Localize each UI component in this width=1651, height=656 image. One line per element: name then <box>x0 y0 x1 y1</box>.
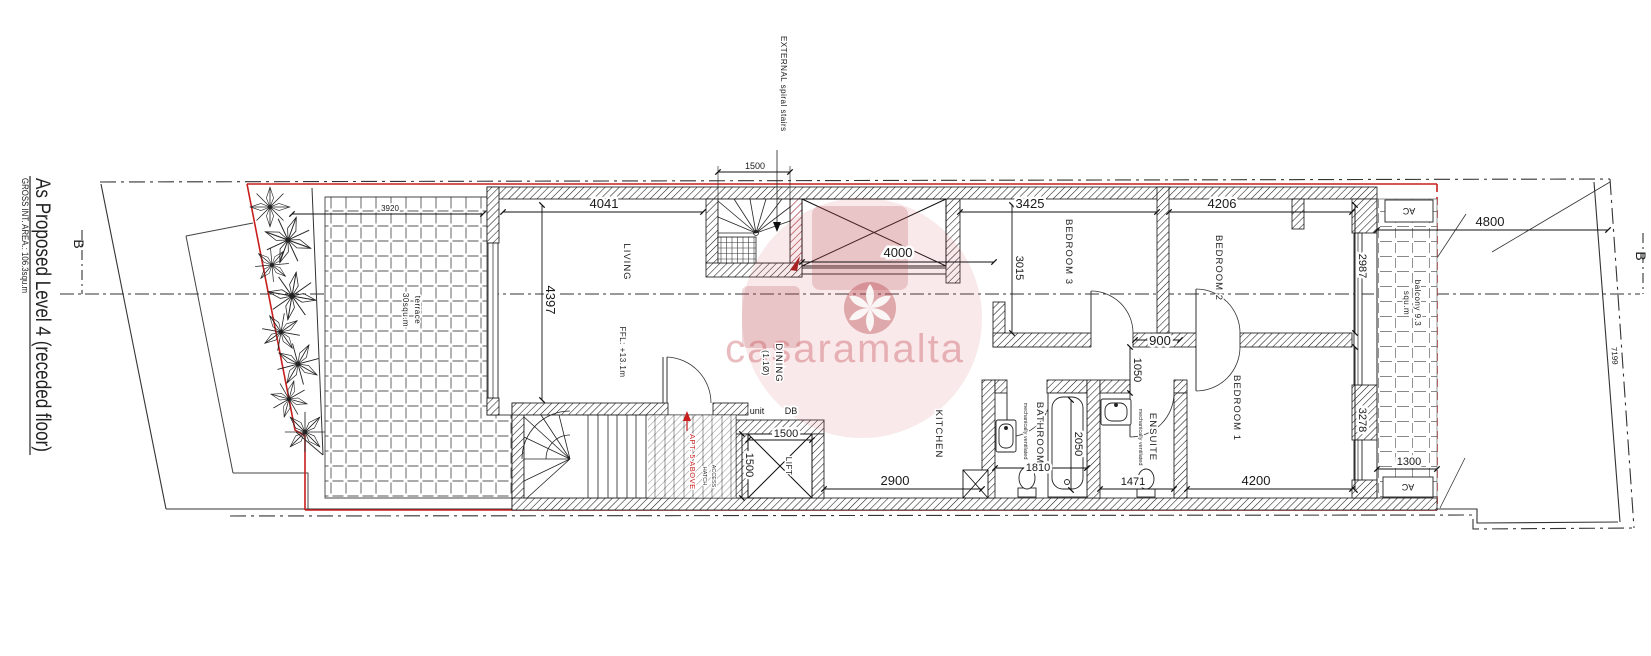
wall-ensuite-top-a <box>1100 380 1130 393</box>
plant-icon <box>257 209 319 271</box>
wall-stair-top-a <box>512 403 668 415</box>
plant-icon <box>250 187 290 227</box>
dim-1471: 1471 <box>1121 476 1145 488</box>
section-marker-right: B <box>1633 251 1649 260</box>
gross-area-note: GROSS INT. AREA.: 106.3squ.m <box>20 178 30 293</box>
dim-7199: 7199 <box>1609 347 1619 366</box>
plant-icon <box>253 304 308 359</box>
label-ensuite: ENSUITE <box>1147 413 1158 461</box>
page-title: As Proposed Level 4 (receded floor) <box>31 178 54 452</box>
dim-1500-lift-w: 1500 <box>774 428 798 440</box>
door-bedroom3 <box>1091 291 1133 333</box>
wall-right-pier-c <box>1352 480 1377 498</box>
label-balcony: balcony 9.3 <box>1413 280 1422 326</box>
label-bedroom1: BEDROOM 1 <box>1231 375 1242 441</box>
label-dining: DINING <box>773 343 784 382</box>
label-terrace: terrace <box>413 296 422 324</box>
wall-ensuite-right <box>1174 393 1187 498</box>
dim-1500-spiral: 1500 <box>745 161 765 171</box>
wall-top <box>487 187 1377 199</box>
title-block: As Proposed Level 4 (receded floor) GROS… <box>20 176 54 455</box>
dim-1300: 1300 <box>1397 456 1421 468</box>
leader-4800-left <box>1437 214 1466 258</box>
label-apt-above: APT. 5 ABOVE <box>688 434 697 490</box>
dim-4397: 4397 <box>543 286 558 315</box>
label-ensuite-note: mechanically ventilated <box>1137 409 1143 466</box>
label-bedroom3: BEDROOM 3 <box>1063 219 1074 285</box>
floor-plan-drawing: casaramalta 3920 4 <box>0 0 1651 656</box>
label-ac-bottom: AC <box>1401 482 1414 492</box>
floor-plan-page: casaramalta 3920 4 <box>0 0 1651 656</box>
wall-lift-right <box>812 434 824 498</box>
red-line-left-diagonal <box>247 184 305 510</box>
leader-bottom-right <box>1440 458 1465 508</box>
label-ac-top: AC <box>1402 206 1415 216</box>
wall-bathroom-top-a <box>995 380 1007 393</box>
label-access: ACCESS <box>710 465 716 488</box>
label-living: LIVING <box>621 243 632 280</box>
dim-4041: 4041 <box>590 196 619 211</box>
kitchen-duct <box>963 470 988 498</box>
dim-2050: 2050 <box>1072 432 1084 456</box>
label-terrace-area: 30squ.m <box>401 293 410 327</box>
dim-3278: 3278 <box>1356 408 1368 432</box>
lift <box>748 434 812 498</box>
wall-bathroom-right <box>1087 380 1100 498</box>
terrace <box>325 197 512 498</box>
wall-bottom <box>512 498 1437 510</box>
spiral-landing-grid <box>718 237 756 263</box>
label-bathroom: BATHROOM <box>1034 402 1045 464</box>
dim-2900: 2900 <box>881 473 910 488</box>
label-ffl: FFL: +13.1m <box>618 326 627 377</box>
balcony-grid <box>1377 199 1437 498</box>
wall-spiral-left <box>706 199 718 265</box>
dim-4206: 4206 <box>1208 196 1237 211</box>
door-stairwell <box>663 357 711 403</box>
dim-4000: 4000 <box>884 245 913 260</box>
boundary-dashdot-top <box>100 179 1610 182</box>
terrace-grid <box>325 197 512 498</box>
wall-bathroom-top-b <box>1047 380 1087 393</box>
ensuite-sink <box>1101 399 1131 425</box>
wall-corridor-a <box>993 333 1091 347</box>
bathroom-sink <box>996 420 1016 452</box>
balcony <box>1377 199 1437 498</box>
label-external-stairs: EXTERNAL spiral stairs <box>779 36 788 132</box>
planter-edge <box>296 188 323 455</box>
label-kitchen: KITCHEN <box>933 410 944 459</box>
planter <box>247 187 334 461</box>
section-marker-left: B <box>71 239 87 248</box>
label-balcony-area: squ.m <box>1402 291 1411 315</box>
dim-3920: 3920 <box>381 204 399 213</box>
label-bedroom2: BEDROOM 2 <box>1213 235 1224 301</box>
wall-stair-top-b <box>713 403 748 415</box>
wall-corridor-c <box>1240 333 1352 347</box>
wall-right-pier-a <box>1352 199 1377 233</box>
dim-1500-lift-h: 1500 <box>743 453 755 477</box>
label-bathroom-note: mechanically ventilated <box>1022 403 1028 460</box>
wall-bed2-pier <box>1292 199 1304 229</box>
label-db: DB <box>785 406 798 416</box>
dim-4800: 4800 <box>1476 214 1505 229</box>
boundary-left-diagonal <box>101 184 166 509</box>
wall-ensuite-top-b <box>1174 380 1187 393</box>
label-hatch: HATCH <box>701 467 707 486</box>
wall-left-lower <box>487 398 499 415</box>
dim-900: 900 <box>1149 333 1171 348</box>
leader-top-right <box>1492 182 1610 252</box>
dim-4200: 4200 <box>1242 473 1271 488</box>
dim-2987: 2987 <box>1356 254 1368 278</box>
wall-left-upper <box>487 187 499 243</box>
dim-3425: 3425 <box>1016 196 1045 211</box>
label-lift: LIFT <box>784 457 793 475</box>
dim-1050: 1050 <box>1131 358 1143 382</box>
wall-bed3-bed2 <box>1157 187 1169 333</box>
label-unit: unit <box>750 406 765 416</box>
boundary-dashdot-bottom <box>230 515 1633 529</box>
dim-3015: 3015 <box>1013 256 1025 280</box>
label-dining-note: (1.1Ø) <box>761 350 770 376</box>
